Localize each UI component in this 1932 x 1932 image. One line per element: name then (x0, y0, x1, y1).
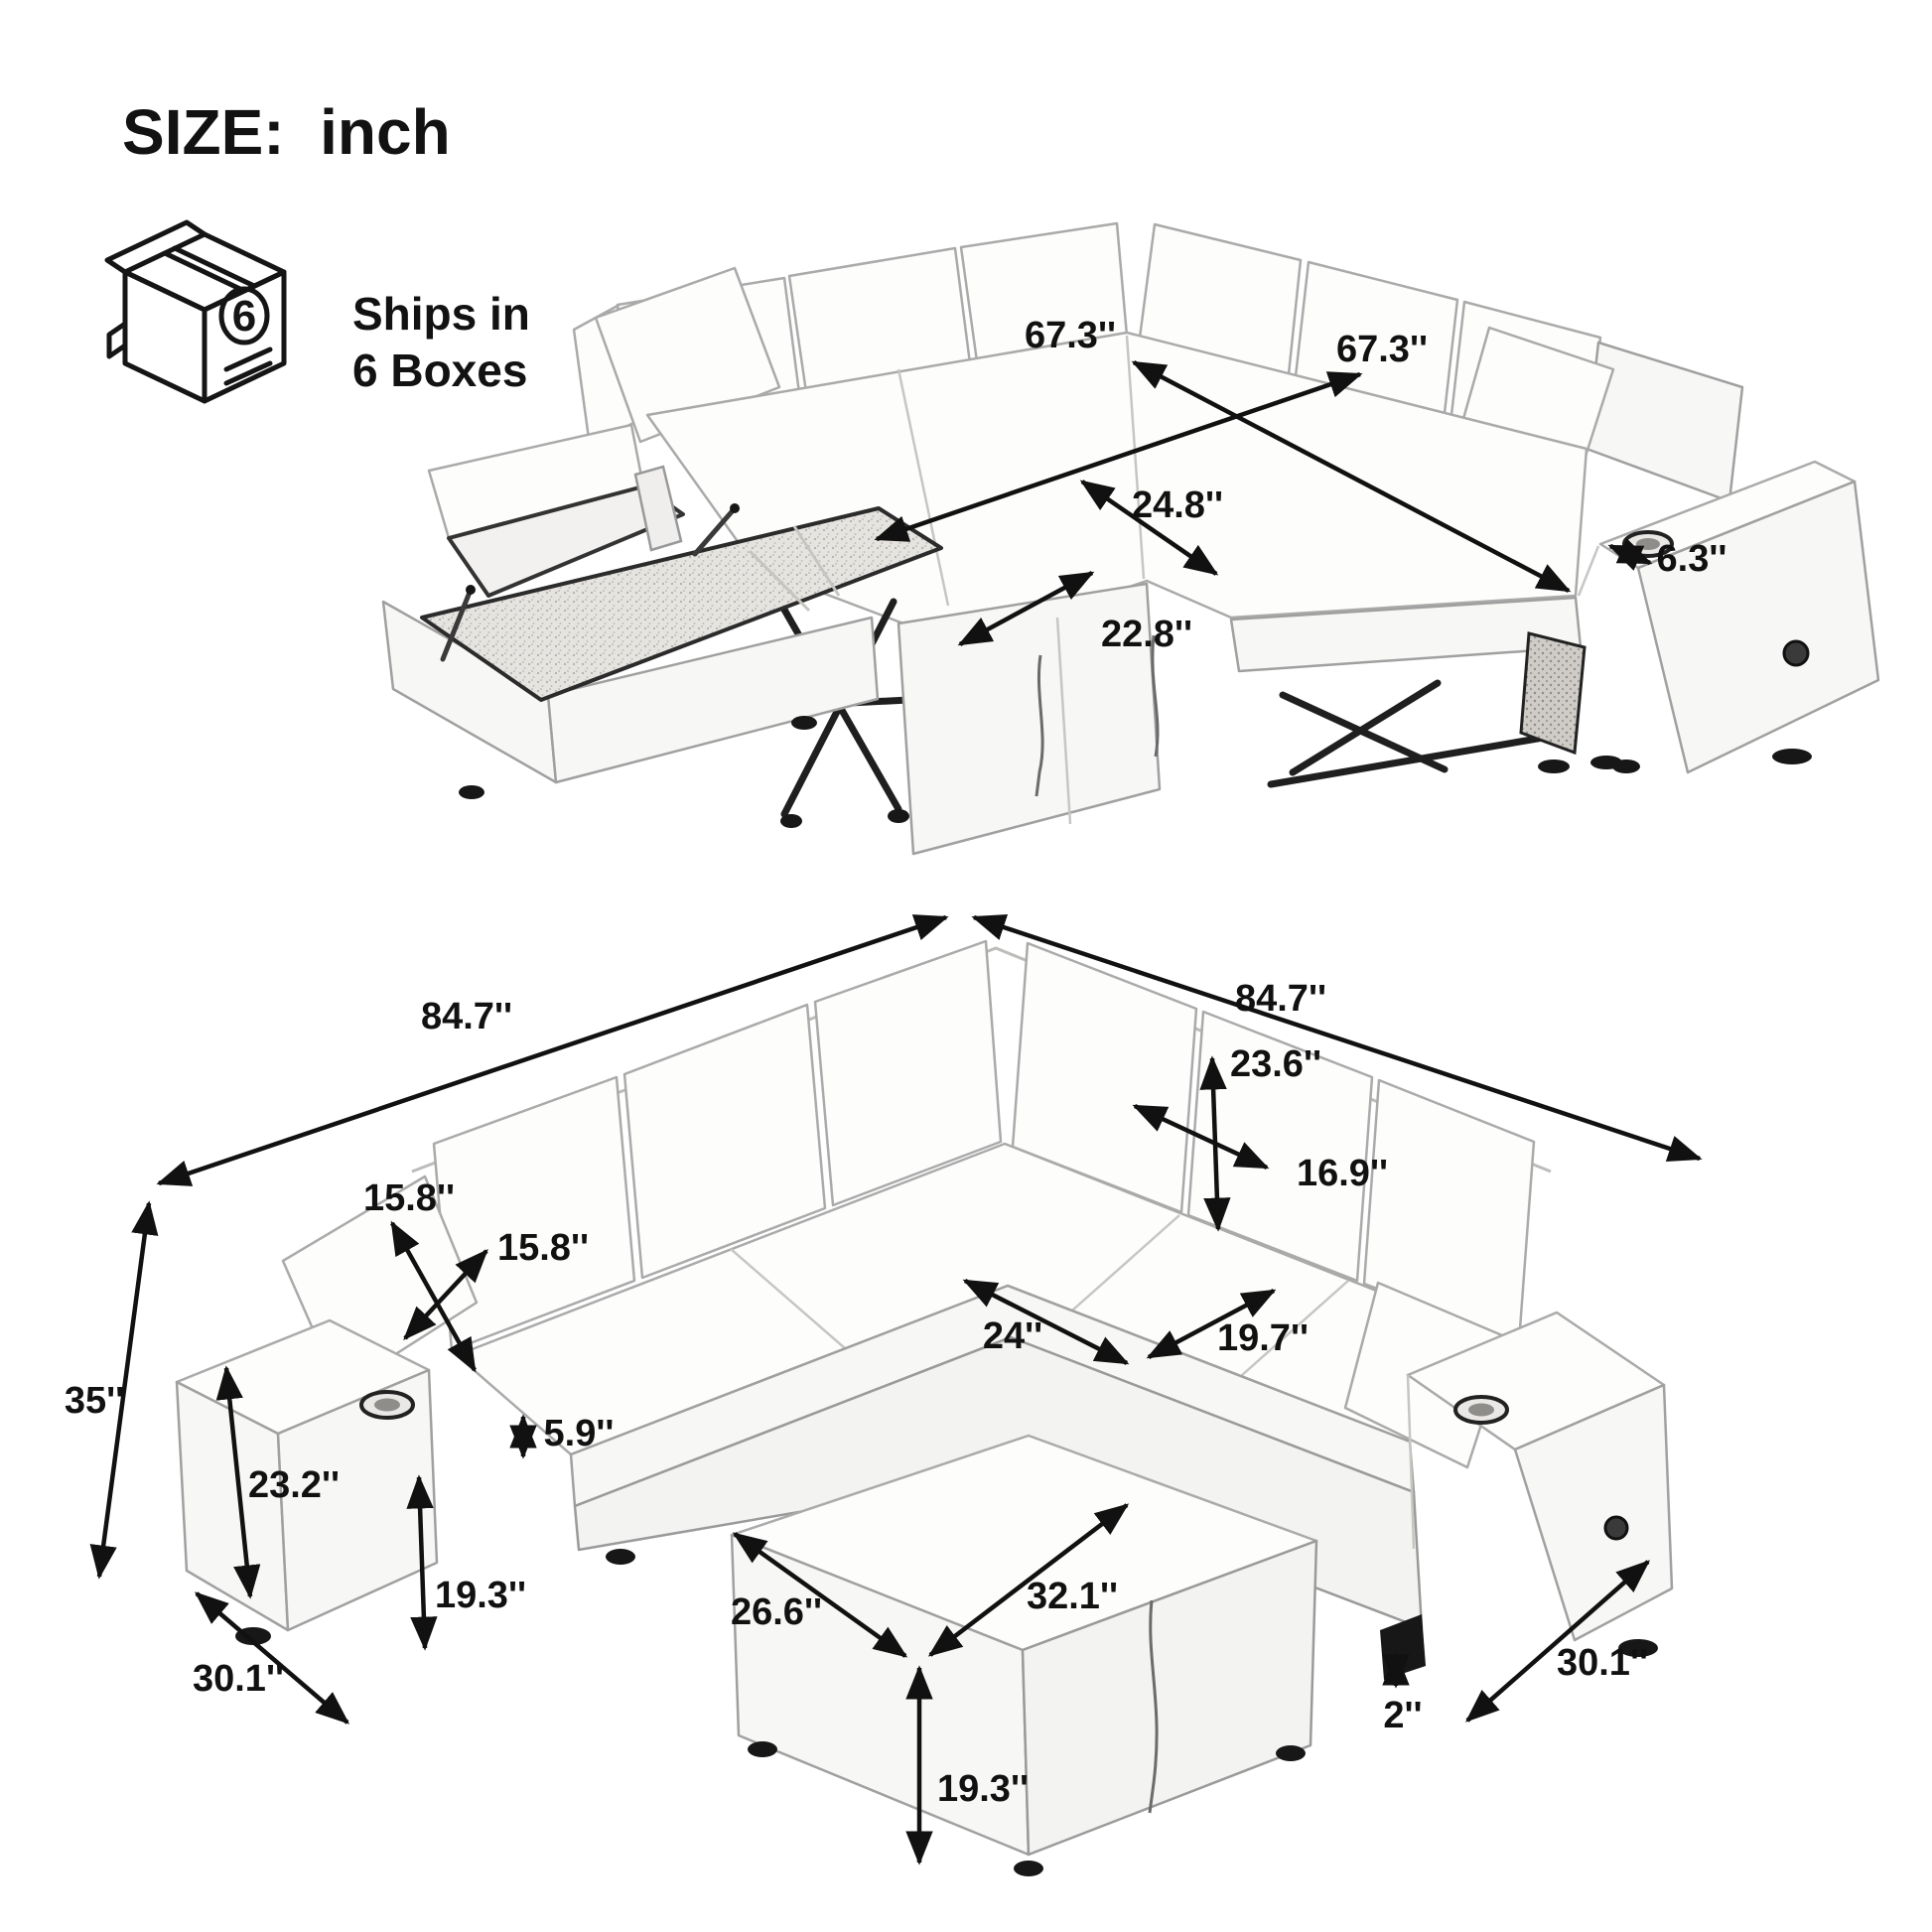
dim-label-ottoman-height: 19.3'' (937, 1768, 1029, 1810)
lid-support-strap (635, 467, 681, 550)
dim-label-leg-height: 2'' (1383, 1695, 1422, 1736)
armrest-inner-edge (1579, 546, 1598, 596)
dim-label-left-section-length: 67.3'' (1336, 329, 1428, 370)
chaise-foot (459, 785, 484, 799)
strut-joint (466, 585, 476, 595)
usb-port-icon (1605, 1517, 1627, 1539)
frame-corner-panel (1521, 633, 1585, 753)
diagram-scene: 67.3'' 67.3'' 24.8'' 22.8'' 6.3'' (0, 0, 1932, 1932)
armrest-foot (1772, 749, 1812, 764)
bed-foot (1538, 759, 1570, 773)
usb-port-icon (1784, 641, 1808, 665)
dim-label-back-cushion-height: 23.6'' (1230, 1043, 1321, 1085)
sofa-foot (606, 1549, 635, 1565)
dim-label-pull-out-bed-depth: 24.8'' (1132, 484, 1223, 526)
dim-label-ottoman-width: 26.6'' (731, 1591, 822, 1633)
dim-label-overall-height: 35'' (65, 1380, 124, 1422)
strut-joint (730, 503, 740, 513)
dim-label-ottoman-length: 32.1'' (1027, 1576, 1118, 1617)
pullout-wheel (780, 814, 802, 828)
dim-label-seat-width: 19.7'' (1217, 1317, 1309, 1359)
cup-holder-inner (1468, 1404, 1494, 1417)
dim-label-seat-cushion-thickness: 5.9'' (544, 1413, 615, 1454)
dim-label-armrest-width: 6.3'' (1657, 538, 1727, 580)
right-back-corner (1587, 343, 1742, 501)
dim-label-base-depth-right: 30.1'' (1557, 1642, 1648, 1684)
cup-holder-inner (374, 1399, 400, 1412)
ottoman-foot (1276, 1745, 1306, 1761)
dim-label-pull-out-bed-width: 22.8'' (1101, 614, 1192, 655)
sectional-diagram: 84.7'' 84.7'' 23.6'' 16.9'' 15.8'' 15.8'… (65, 917, 1700, 1876)
ottoman-foot (1014, 1861, 1043, 1876)
dim-label-total-length-right: 84.7'' (1235, 978, 1326, 1020)
dim-label-back-cushion-width: 16.9'' (1297, 1153, 1388, 1194)
size-diagram-page: SIZE: inch 6 Ships in 6 Boxes (0, 0, 1932, 1932)
armrest-foot (1612, 759, 1640, 773)
sofa-bed-diagram: 67.3'' 67.3'' 24.8'' 22.8'' 6.3'' (383, 223, 1878, 854)
dim-label-seat-height: 19.3'' (435, 1575, 526, 1616)
dim-label-seat-depth: 24'' (983, 1315, 1042, 1357)
sofa-foot-leg (1380, 1614, 1426, 1680)
dim-label-armrest-height: 23.2'' (248, 1464, 340, 1506)
dim-label-pillow-height: 15.8'' (497, 1227, 589, 1269)
dim-label-total-length-left: 84.7'' (421, 996, 512, 1037)
chaise-foot (791, 716, 817, 730)
dim-label-pillow-width: 15.8'' (363, 1177, 455, 1219)
pullout-wheel (888, 809, 909, 823)
ottoman-foot (748, 1741, 777, 1757)
dim-label-base-depth-left: 30.1'' (193, 1658, 284, 1700)
dim-label-right-section-length: 67.3'' (1025, 315, 1116, 356)
